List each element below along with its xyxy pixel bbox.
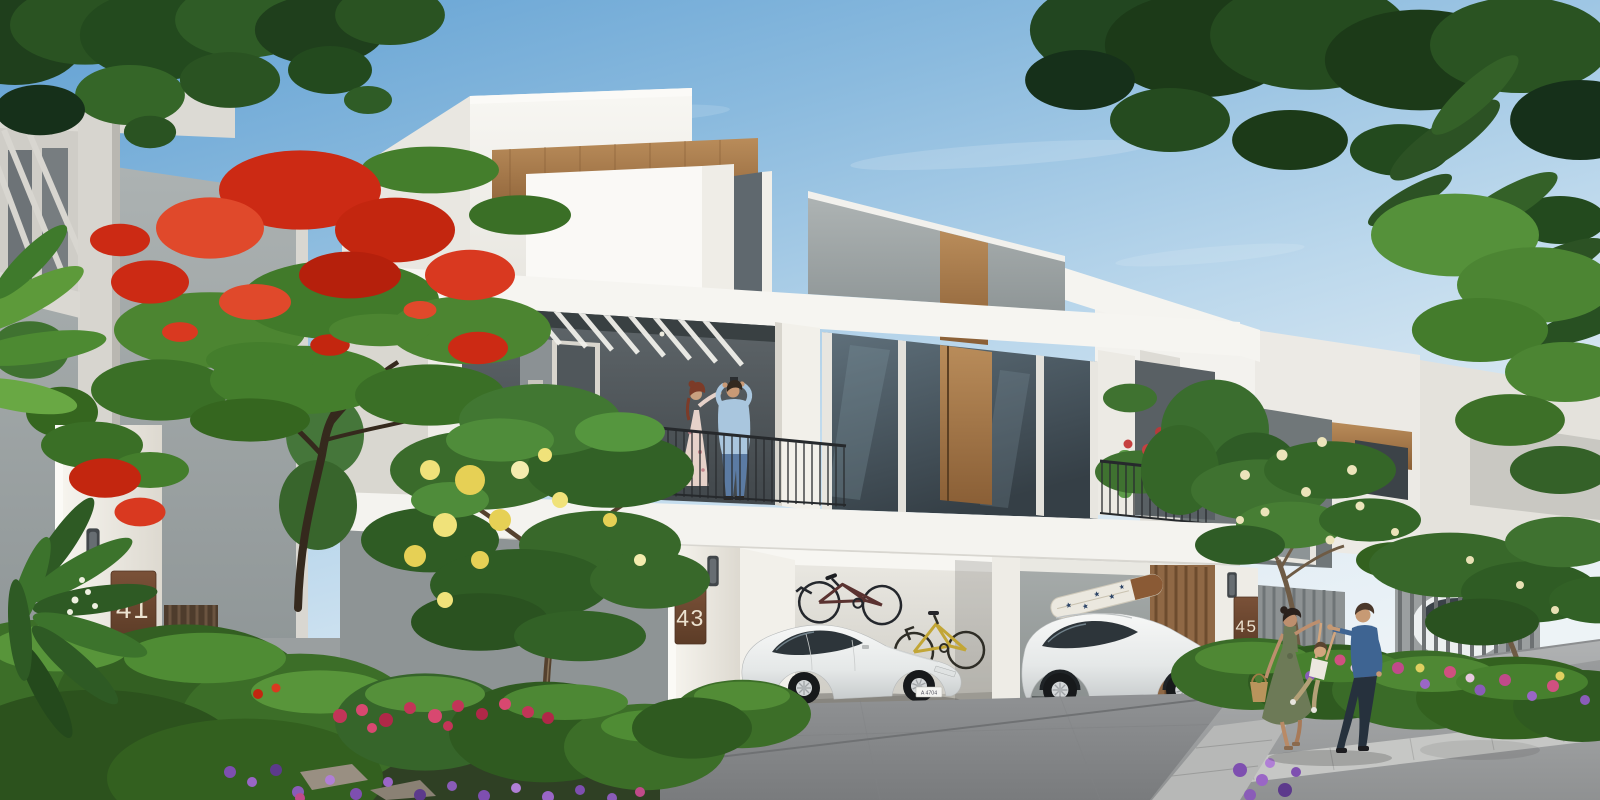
basket xyxy=(1250,675,1268,703)
render-canvas: 41 xyxy=(0,0,1600,800)
upper-windows xyxy=(822,332,1098,519)
house-number-45: 45 xyxy=(1236,617,1258,636)
wall-sconce-45 xyxy=(1227,572,1237,598)
license-plate-text: A 4704 xyxy=(921,691,937,697)
scene-render: 41 xyxy=(0,0,1600,800)
license-plate: A 4704 xyxy=(916,687,942,697)
house-number-43: 43 xyxy=(676,605,705,631)
